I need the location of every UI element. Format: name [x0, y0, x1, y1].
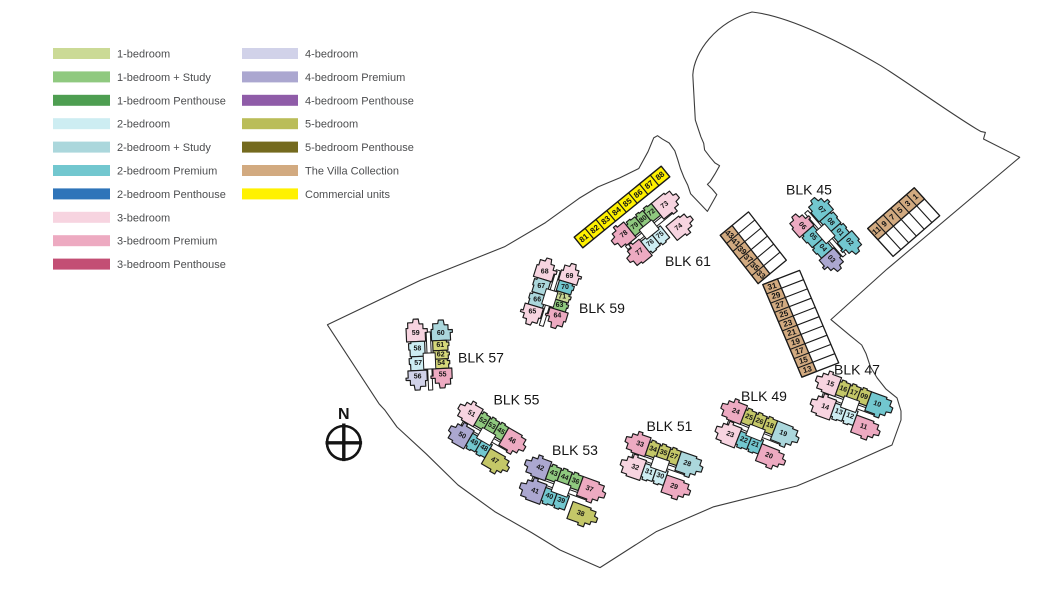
svg-text:5-bedroom Penthouse: 5-bedroom Penthouse: [305, 142, 414, 154]
svg-text:65: 65: [529, 309, 537, 316]
svg-text:63: 63: [556, 302, 564, 309]
svg-text:61: 61: [436, 342, 444, 349]
svg-text:2-bedroom + Study: 2-bedroom + Study: [117, 142, 211, 154]
svg-text:55: 55: [439, 371, 447, 378]
svg-text:BLK 55: BLK 55: [494, 392, 540, 408]
svg-text:3-bedroom: 3-bedroom: [117, 212, 170, 224]
svg-text:BLK 61: BLK 61: [665, 253, 711, 269]
svg-text:2-bedroom: 2-bedroom: [117, 119, 170, 131]
svg-text:4-bedroom Penthouse: 4-bedroom Penthouse: [305, 95, 414, 107]
svg-text:1-bedroom: 1-bedroom: [117, 49, 170, 61]
svg-text:BLK 53: BLK 53: [552, 442, 598, 458]
svg-text:67: 67: [537, 283, 545, 290]
svg-text:56: 56: [414, 374, 422, 381]
svg-text:4-bedroom Premium: 4-bedroom Premium: [305, 72, 405, 84]
svg-text:1-bedroom Penthouse: 1-bedroom Penthouse: [117, 95, 226, 107]
svg-text:64: 64: [554, 313, 562, 320]
svg-text:BLK 45: BLK 45: [786, 182, 832, 198]
svg-text:BLK 49: BLK 49: [741, 388, 787, 404]
svg-text:68: 68: [541, 268, 549, 275]
svg-text:59: 59: [412, 330, 420, 337]
svg-text:BLK 59: BLK 59: [579, 300, 625, 316]
svg-text:69: 69: [566, 273, 574, 280]
svg-text:71: 71: [558, 293, 566, 300]
svg-text:The Villa Collection: The Villa Collection: [305, 166, 399, 178]
svg-text:2-bedroom Penthouse: 2-bedroom Penthouse: [117, 189, 226, 201]
svg-text:66: 66: [533, 296, 541, 303]
svg-text:58: 58: [414, 346, 422, 353]
svg-text:54: 54: [437, 360, 445, 367]
svg-text:62: 62: [437, 351, 445, 358]
svg-text:4-bedroom: 4-bedroom: [305, 49, 358, 61]
svg-text:2-bedroom Premium: 2-bedroom Premium: [117, 166, 217, 178]
svg-text:3-bedroom Penthouse: 3-bedroom Penthouse: [117, 259, 226, 271]
svg-text:BLK 47: BLK 47: [834, 362, 880, 378]
svg-text:3-bedroom Premium: 3-bedroom Premium: [117, 236, 217, 248]
svg-text:BLK 57: BLK 57: [458, 350, 504, 366]
svg-text:5-bedroom: 5-bedroom: [305, 119, 358, 131]
svg-text:1-bedroom + Study: 1-bedroom + Study: [117, 72, 211, 84]
svg-text:60: 60: [437, 330, 445, 337]
svg-text:57: 57: [414, 360, 422, 367]
svg-text:70: 70: [561, 284, 569, 291]
svg-text:N: N: [338, 406, 350, 423]
svg-text:Commercial units: Commercial units: [305, 189, 390, 201]
svg-text:BLK 51: BLK 51: [647, 418, 693, 434]
